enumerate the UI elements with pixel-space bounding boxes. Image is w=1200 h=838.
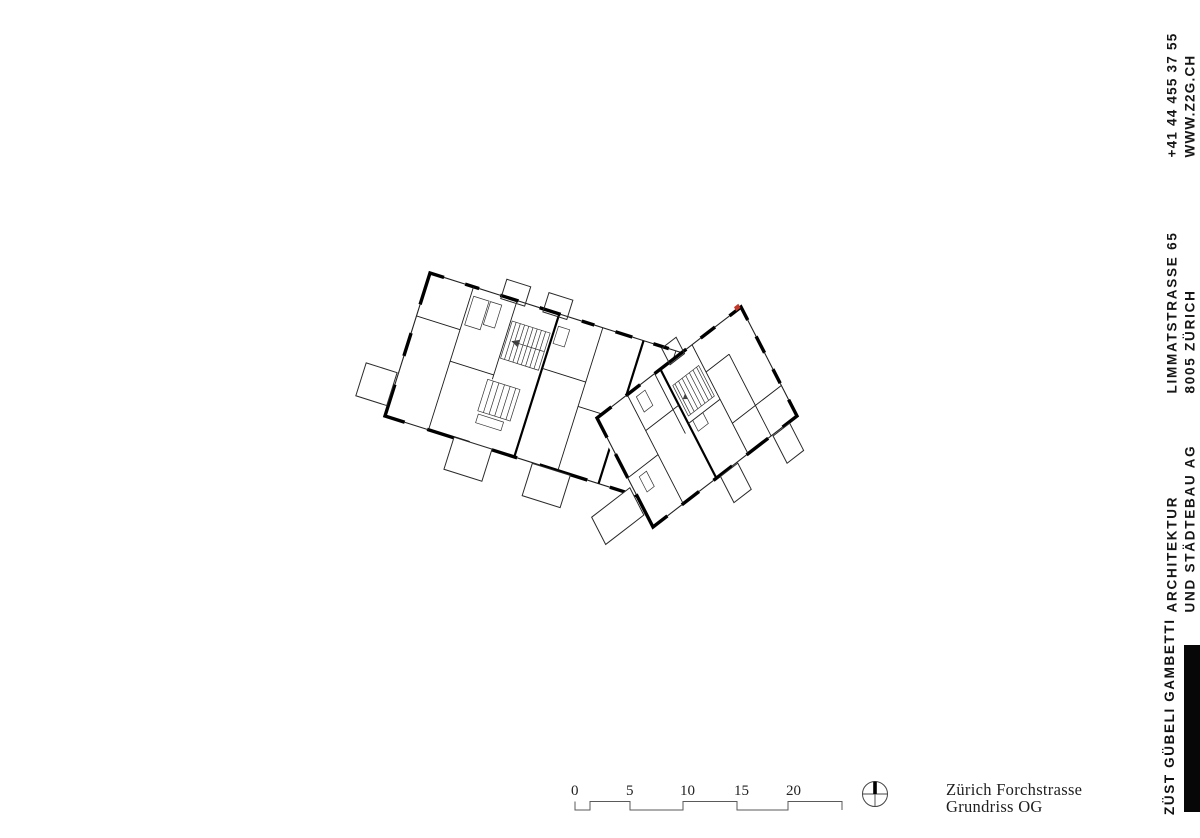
firm-descriptor: ARCHITEKTUR UND STÄDTEBAU AG bbox=[1164, 427, 1199, 613]
scale-label-20: 20 bbox=[786, 783, 801, 799]
scale-bar: 0 5 10 15 20 bbox=[565, 780, 855, 825]
contact-info: +41 44 455 37 55 WWW.Z2G.CH bbox=[1164, 22, 1199, 158]
scale-label-15: 15 bbox=[734, 783, 749, 799]
floor-plan bbox=[340, 253, 835, 553]
firm-descriptor-line1: ARCHITEKTUR bbox=[1164, 427, 1182, 613]
sheet-title: Grundriss OG bbox=[946, 799, 1082, 816]
brand-name: ZÜST GÜBELI GAMBETTI bbox=[1160, 645, 1180, 815]
address-city: 8005 ZÜRICH bbox=[1181, 222, 1199, 394]
contact-website: WWW.Z2G.CH bbox=[1181, 22, 1199, 158]
scale-bar-steps bbox=[575, 802, 842, 811]
scale-label-0: 0 bbox=[571, 783, 579, 799]
plan-sheet: { "right_rail": { "contact": { "line1": … bbox=[0, 0, 1200, 838]
title-block: Zürich Forchstrasse Grundriss OG bbox=[946, 782, 1082, 815]
contact-phone: +41 44 455 37 55 bbox=[1164, 22, 1182, 158]
scale-label-5: 5 bbox=[626, 783, 634, 799]
firm-descriptor-line2: UND STÄDTEBAU AG bbox=[1181, 427, 1199, 613]
north-arrow-icon bbox=[856, 775, 896, 815]
address-street: LIMMATSTRASSE 65 bbox=[1164, 222, 1182, 394]
brand-bar bbox=[1184, 645, 1200, 812]
scale-label-10: 10 bbox=[680, 783, 695, 799]
firm-address: LIMMATSTRASSE 65 8005 ZÜRICH bbox=[1164, 222, 1199, 394]
